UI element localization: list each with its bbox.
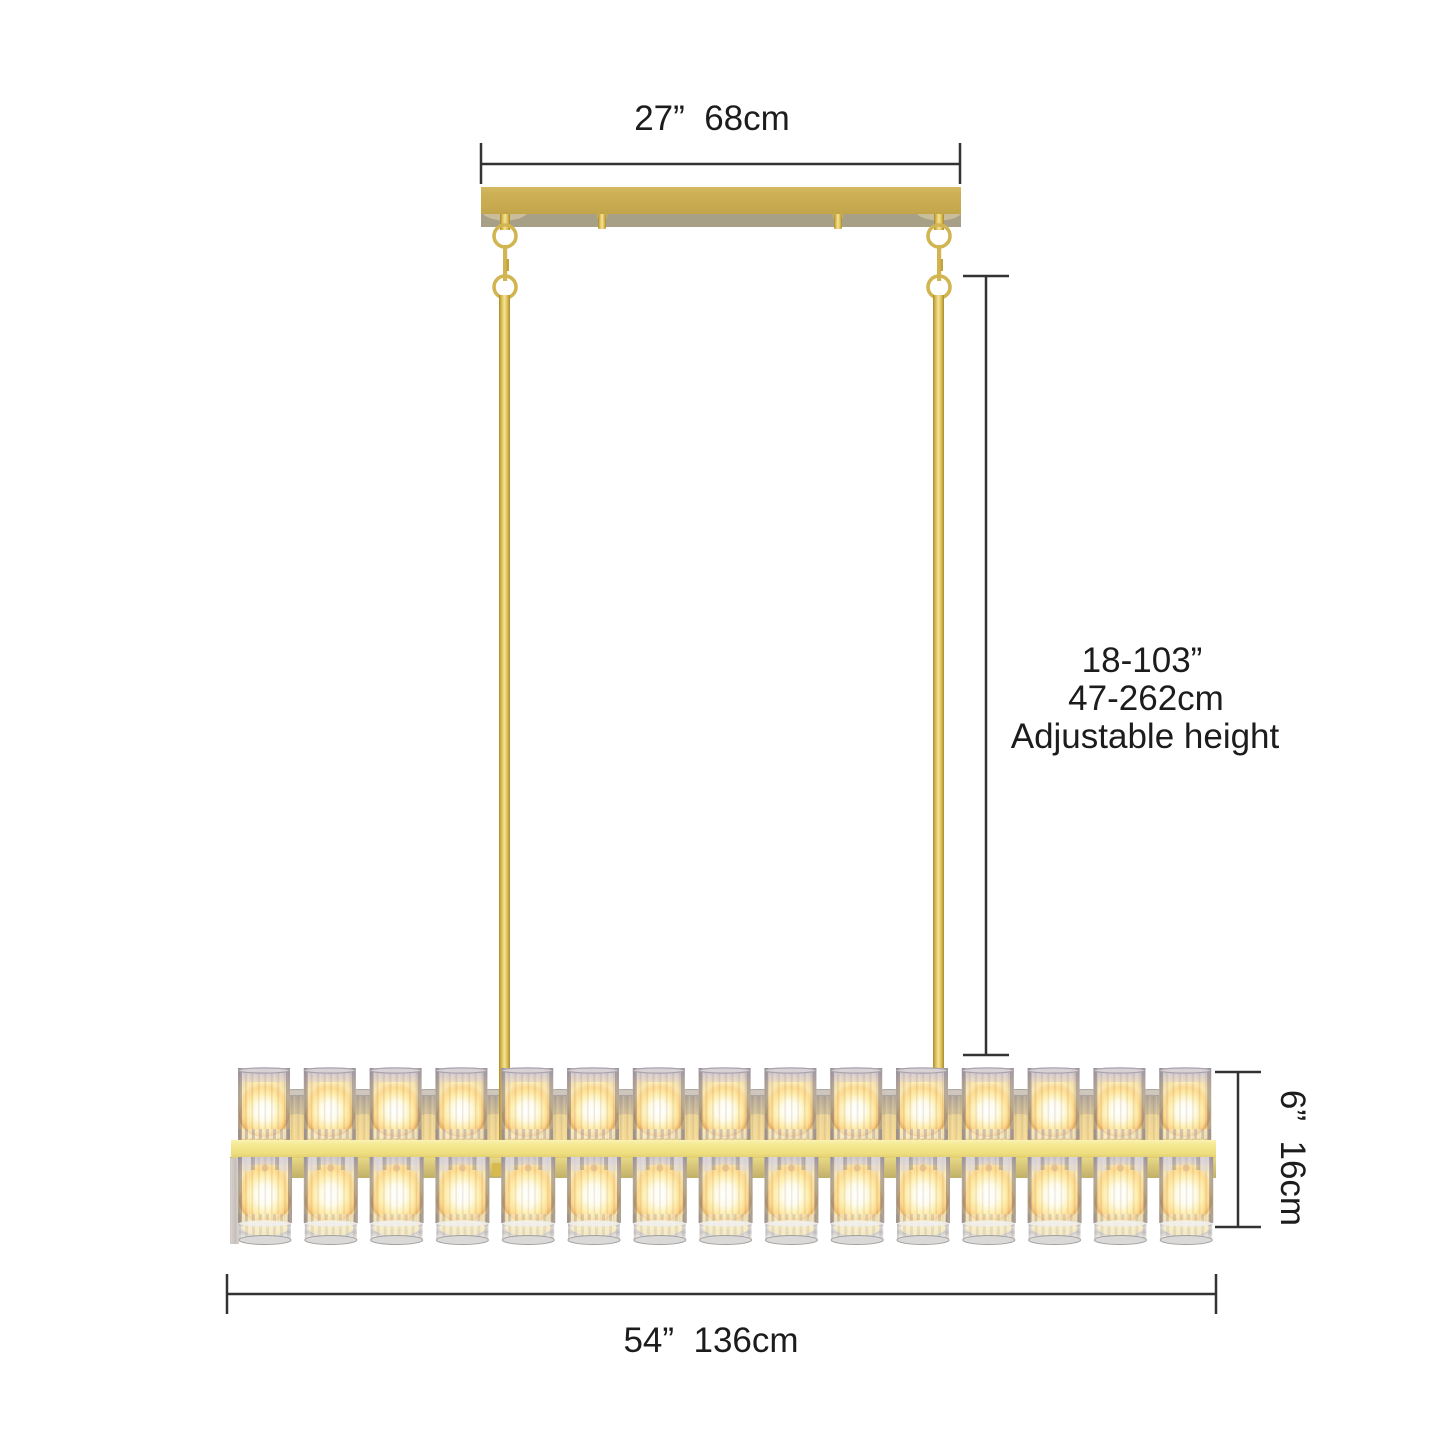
svg-text:18-103”: 18-103” <box>1082 641 1203 680</box>
svg-text:27” 68cm: 27” 68cm <box>634 99 790 138</box>
svg-text:Adjustable height: Adjustable height <box>1011 717 1280 756</box>
svg-text:54” 136cm: 54” 136cm <box>623 1321 798 1360</box>
svg-text:6” 16cm: 6” 16cm <box>1273 1090 1312 1226</box>
svg-text:47-262cm: 47-262cm <box>1068 679 1224 718</box>
